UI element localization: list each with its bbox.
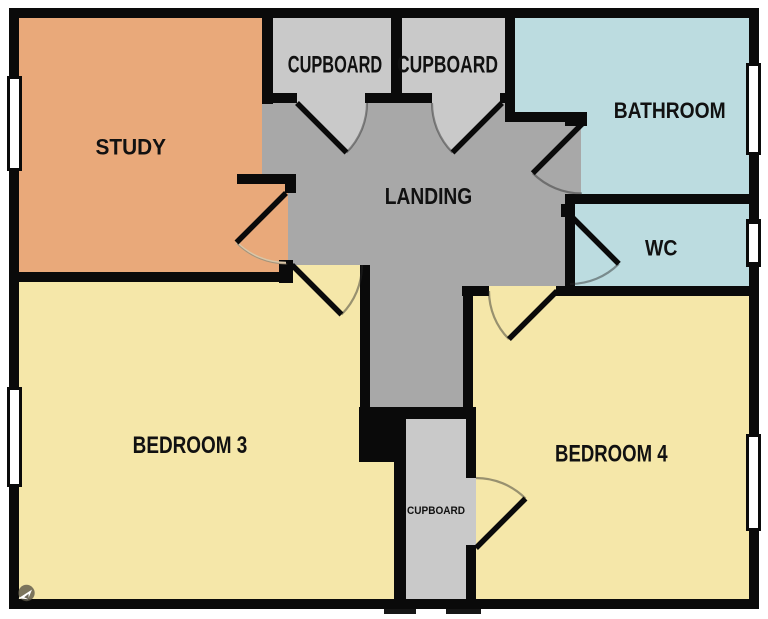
svg-text:CUPBOARD: CUPBOARD bbox=[407, 505, 465, 517]
svg-text:LANDING: LANDING bbox=[385, 183, 473, 209]
svg-text:CUPBOARD: CUPBOARD bbox=[288, 51, 382, 78]
svg-text:STUDY: STUDY bbox=[96, 135, 167, 160]
svg-text:BEDROOM 4: BEDROOM 4 bbox=[555, 440, 668, 467]
svg-text:BEDROOM 3: BEDROOM 3 bbox=[133, 432, 248, 459]
svg-text:CUPBOARD: CUPBOARD bbox=[397, 51, 498, 78]
svg-text:WC: WC bbox=[645, 236, 677, 261]
svg-text:BATHROOM: BATHROOM bbox=[614, 98, 726, 123]
